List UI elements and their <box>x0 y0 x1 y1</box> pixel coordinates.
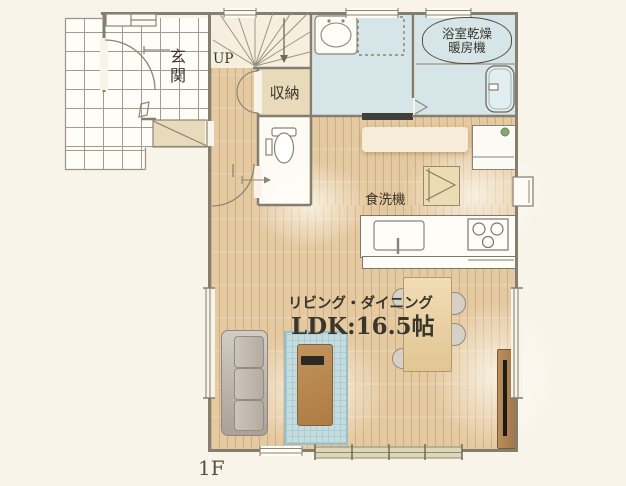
entrance-label: 玄関 <box>164 48 188 86</box>
storage-label: 収納 <box>258 82 311 103</box>
window-top-stairs <box>224 8 256 18</box>
kitchen-sink <box>374 221 424 254</box>
window-bottom-small <box>260 446 302 456</box>
window-right-wall <box>511 288 523 398</box>
window-bottom-sliding <box>315 444 462 460</box>
washing-machine-space <box>358 17 404 55</box>
refrigerator-details <box>472 128 514 157</box>
bathtub <box>486 66 514 112</box>
floor-plan: 玄関 UP 収納 浴室乾燥 暖房機 食洗機 リビング・ダイニング LDK:16.… <box>0 0 626 486</box>
plan-linework <box>0 0 626 486</box>
window-left-wall <box>203 288 215 398</box>
floor-label: 1F <box>198 456 225 480</box>
entrance-step-outline <box>139 102 207 147</box>
dishwasher-door-lines <box>426 168 455 202</box>
bath-heater-line2: 暖房機 <box>423 41 511 55</box>
bathroom-bifold-door <box>415 100 427 114</box>
window-top-washroom <box>346 8 398 18</box>
dishwasher-label: 食洗機 <box>365 188 406 208</box>
ldk-size-label: LDK:16.5帖 <box>291 307 435 341</box>
stove-burners <box>468 219 508 250</box>
bath-heater-line1: 浴室乾燥 <box>423 27 511 41</box>
back-door <box>513 177 533 206</box>
hall-ldk-door-arc <box>212 164 254 206</box>
toilet-fixture <box>266 128 296 163</box>
bath-heater-badge: 浴室乾燥 暖房機 <box>422 17 512 64</box>
entrance-door-arc <box>105 40 170 90</box>
shoe-cabinet <box>106 14 156 26</box>
washroom-sink <box>315 16 357 54</box>
stairs-up-label: UP <box>213 51 233 67</box>
